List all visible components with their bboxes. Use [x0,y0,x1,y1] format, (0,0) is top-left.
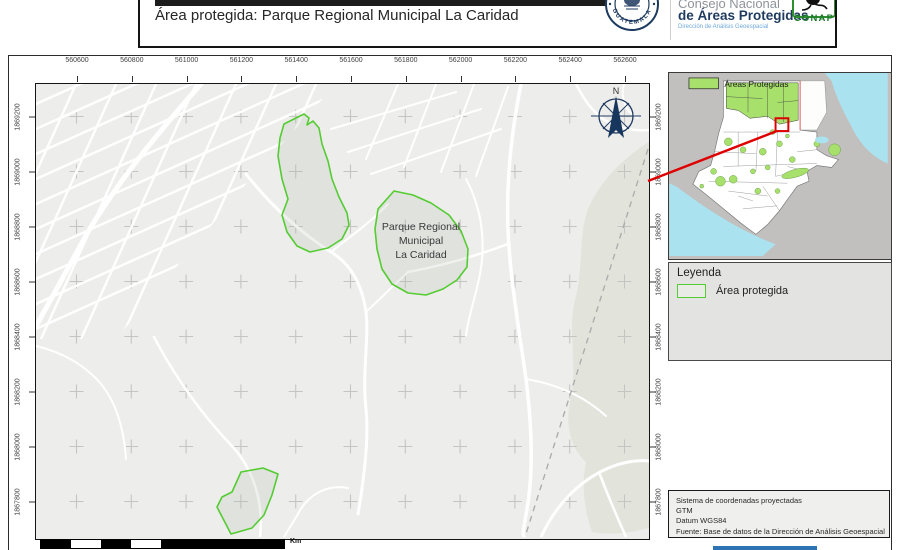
svg-text:Parque Regional: Parque Regional [382,221,460,233]
protected-area-swatch [677,284,706,298]
coordinate-grid-crosses [36,84,649,537]
main-map: Parque Regional Municipal La Caridad N [35,83,650,540]
header: Área protegida: Parque Regional Municipa… [138,0,837,48]
overview-legend-label: Áreas Protegidas [724,79,788,89]
svg-text:Municipal: Municipal [399,235,443,247]
legend-item-label: Área protegida [716,285,788,297]
scale-unit-label: Km [290,538,301,545]
map-title: Área protegida: Parque Regional Municipa… [155,7,519,24]
header-divider [670,0,671,40]
legend-box: Leyenda Área protegida [668,262,892,361]
main-map-canvas: Parque Regional Municipal La Caridad N [36,84,649,537]
scale-bar [40,539,285,549]
clipped-title-line [155,0,613,6]
overview-map: Áreas Protegidas [668,72,892,260]
overview-canvas: Áreas Protegidas [669,73,888,256]
datum-line: Datum WGS84 [676,516,882,526]
legend-item: Área protegida [677,284,788,298]
svg-text:La Caridad: La Caridad [395,249,447,261]
org-name-line2: de Áreas Protegidas [678,8,809,23]
scale-segment [161,540,284,548]
scale-segment [41,540,71,548]
crs-line: Sistema de coordenadas proyectadas [676,496,882,506]
lake-izabal [815,136,829,143]
scale-segment [131,540,161,548]
quetzal-icon [794,0,829,11]
scale-segment [101,540,131,548]
map-sheet: Parque Regional Municipal La Caridad N 5… [0,0,900,550]
scale-segment [71,540,101,548]
overview-legend-swatch [689,78,719,89]
guatemala-seal: GUATEMALA [600,0,664,36]
org-subtitle: Dirección de Análisis Geoespacial [678,24,768,30]
conap-label: CONAP [790,13,837,24]
fuente-line: Fuente: Base de datos de la Dirección de… [676,527,882,537]
source-info-box: Sistema de coordenadas proyectadas GTM D… [668,490,890,538]
north-label: N [613,86,620,96]
bottom-blue-bar [713,546,817,550]
legend-title: Leyenda [677,267,721,279]
grid-line: GTM [676,506,882,516]
